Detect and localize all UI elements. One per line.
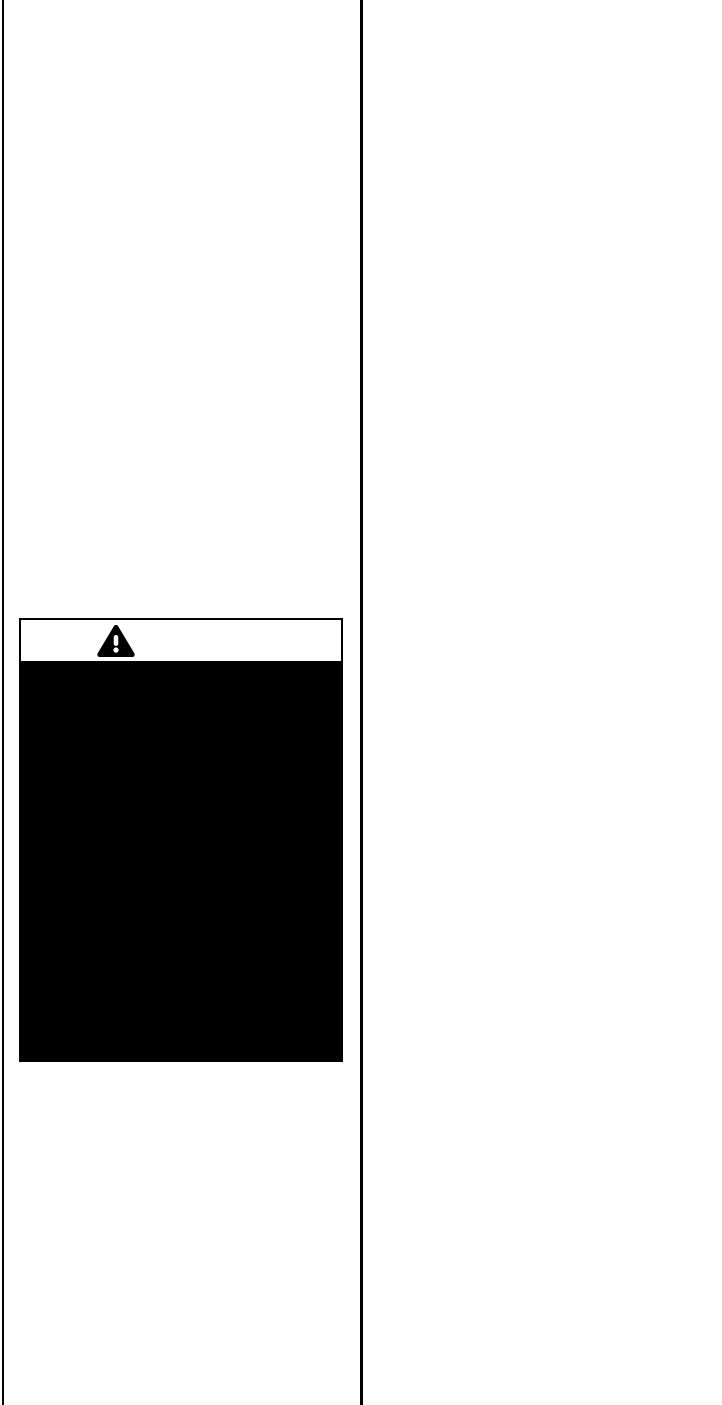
warning-triangle-icon	[97, 624, 135, 658]
column-divider-rule	[360, 0, 363, 1405]
left-page-border-rule	[2, 0, 4, 1405]
document-page	[0, 0, 722, 1405]
exclamation-dot	[113, 647, 118, 652]
warning-figure-body-blackout	[21, 661, 341, 1060]
exclamation-bar	[114, 634, 119, 645]
warning-figure-header	[21, 620, 341, 661]
warning-figure	[19, 618, 343, 1062]
